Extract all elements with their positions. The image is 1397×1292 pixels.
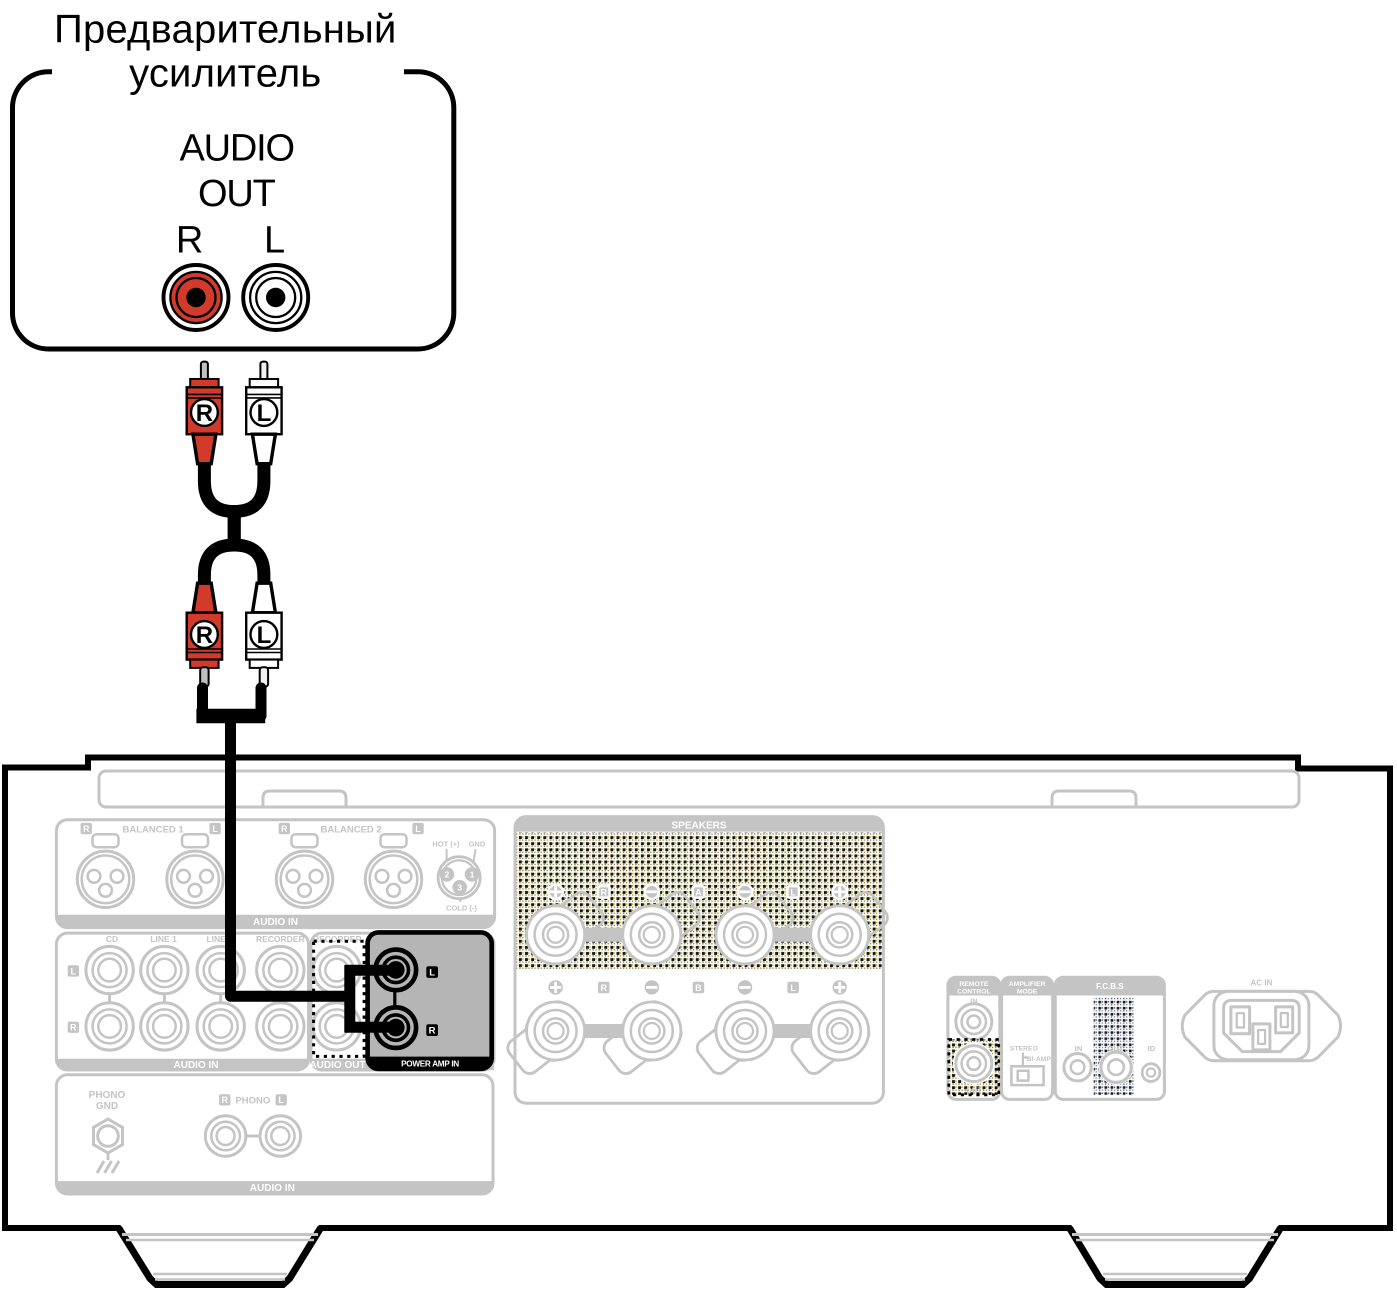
- svg-text:CD: CD: [106, 934, 118, 944]
- svg-text:L: L: [278, 1095, 284, 1105]
- svg-text:R: R: [70, 1023, 77, 1033]
- svg-text:AUDIO IN: AUDIO IN: [250, 1183, 295, 1194]
- svg-text:A: A: [695, 887, 702, 897]
- svg-text:2: 2: [445, 870, 450, 880]
- svg-text:R: R: [221, 1095, 228, 1105]
- svg-text:R: R: [429, 1026, 436, 1037]
- svg-text:R: R: [196, 400, 213, 427]
- svg-text:R: R: [600, 887, 607, 897]
- svg-text:L: L: [790, 983, 796, 993]
- svg-text:L: L: [790, 887, 796, 897]
- svg-text:GND: GND: [469, 840, 486, 849]
- svg-text:IN: IN: [970, 997, 978, 1006]
- svg-text:BI-AMP: BI-AMP: [1027, 1056, 1052, 1063]
- svg-text:L: L: [71, 966, 77, 976]
- svg-text:L: L: [429, 968, 435, 979]
- svg-text:1: 1: [470, 870, 475, 880]
- svg-text:R: R: [196, 622, 213, 649]
- svg-text:SPEAKERS: SPEAKERS: [671, 821, 726, 832]
- svg-text:PHONO: PHONO: [89, 1090, 126, 1101]
- svg-text:GND: GND: [96, 1101, 118, 1112]
- svg-text:L: L: [257, 400, 272, 427]
- svg-text:Предварительный: Предварительный: [54, 8, 397, 52]
- svg-text:AMPLIFIER: AMPLIFIER: [1009, 981, 1046, 988]
- svg-text:REMOTE: REMOTE: [959, 981, 989, 988]
- svg-text:PHONO: PHONO: [235, 1096, 270, 1107]
- svg-text:CONTROL: CONTROL: [957, 989, 991, 996]
- svg-text:F.C.B.S: F.C.B.S: [1096, 982, 1124, 991]
- svg-text:AUDIO OUT: AUDIO OUT: [309, 1060, 365, 1071]
- svg-text:L: L: [212, 824, 218, 834]
- svg-text:L: L: [264, 219, 285, 261]
- svg-text:HOT (+): HOT (+): [432, 840, 460, 849]
- svg-text:R: R: [600, 983, 607, 993]
- svg-text:POWER AMP IN: POWER AMP IN: [401, 1060, 459, 1069]
- svg-text:BALANCED 2: BALANCED 2: [320, 825, 381, 836]
- svg-text:RECORDER: RECORDER: [256, 934, 305, 944]
- svg-text:IN: IN: [1075, 1044, 1083, 1053]
- svg-text:AUDIO IN: AUDIO IN: [253, 917, 298, 928]
- svg-text:3: 3: [457, 883, 462, 893]
- svg-text:L: L: [257, 622, 272, 649]
- svg-text:усилитель: усилитель: [129, 52, 321, 96]
- svg-text:AUDIO: AUDIO: [180, 127, 294, 169]
- svg-text:COLD (-): COLD (-): [446, 904, 477, 913]
- svg-text:R: R: [83, 824, 90, 834]
- svg-text:AC IN: AC IN: [1251, 979, 1273, 988]
- svg-text:R: R: [176, 219, 203, 261]
- svg-text:BALANCED 1: BALANCED 1: [122, 825, 184, 836]
- svg-text:LINE 1: LINE 1: [150, 934, 177, 944]
- svg-text:AUDIO IN: AUDIO IN: [174, 1060, 219, 1071]
- svg-text:OUT: OUT: [966, 1086, 982, 1095]
- svg-text:R: R: [281, 824, 288, 834]
- svg-text:ID: ID: [1148, 1044, 1156, 1053]
- svg-text:MODE: MODE: [1017, 989, 1038, 996]
- svg-text:OUT: OUT: [198, 173, 276, 215]
- svg-text:B: B: [695, 983, 702, 993]
- svg-text:OUT: OUT: [1108, 1044, 1124, 1053]
- svg-text:STEREO: STEREO: [1010, 1046, 1038, 1053]
- svg-text:L: L: [415, 824, 421, 834]
